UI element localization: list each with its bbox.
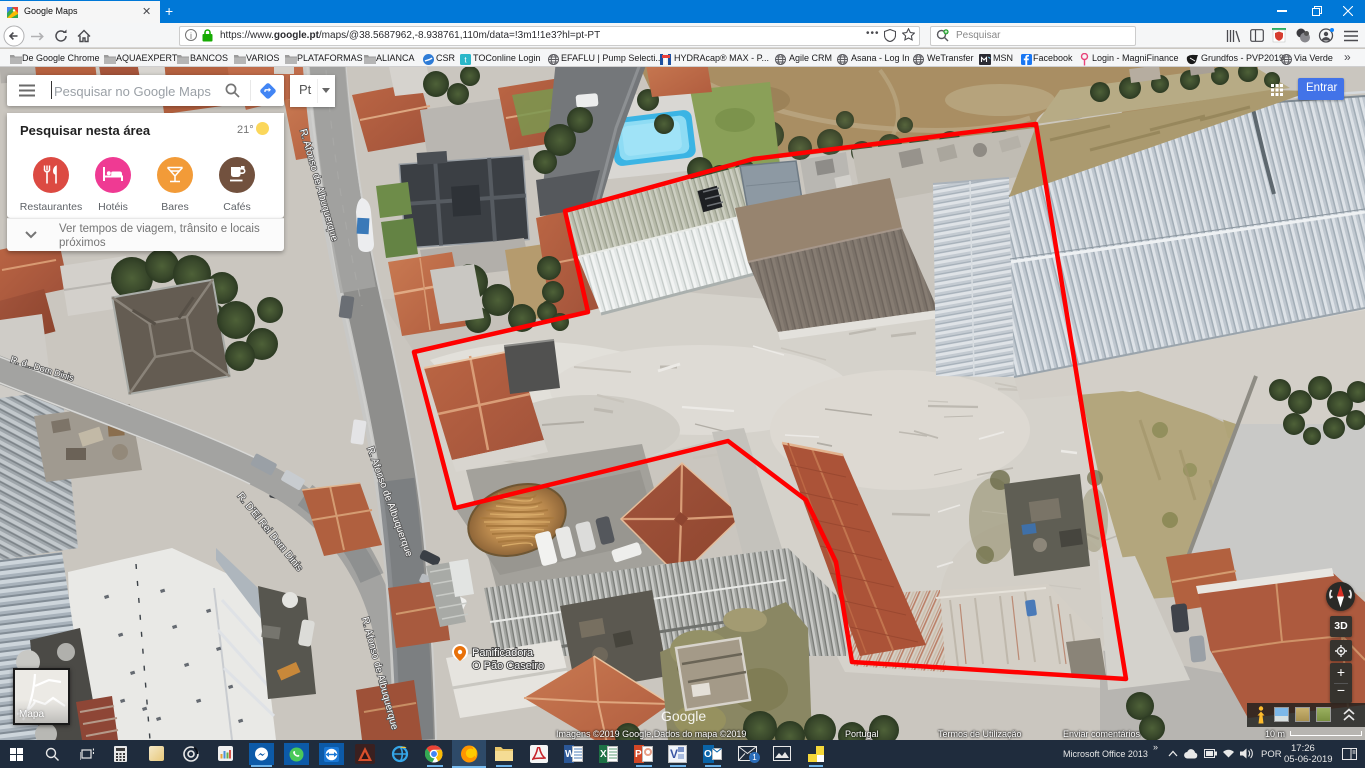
svg-text:O Pão Caseiro: O Pão Caseiro [472,660,544,672]
svg-text:Google: Google [661,708,706,724]
svg-text:Panificadora: Panificadora [472,647,534,659]
